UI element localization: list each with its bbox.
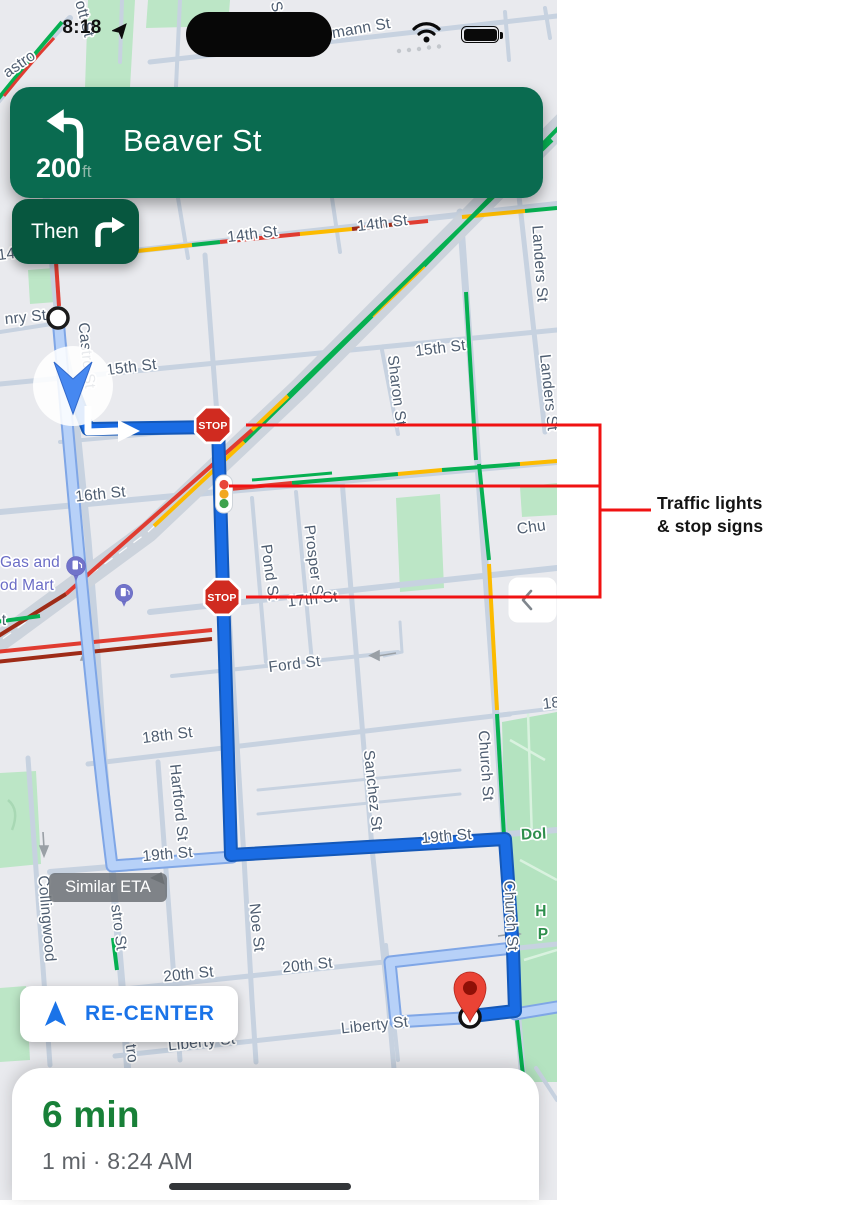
screen: mann St ott St astro S 14th St 14th St n… — [0, 0, 850, 1200]
maneuver-distance: 200ft — [36, 153, 92, 184]
then-maneuver-chip[interactable]: Then — [12, 199, 139, 264]
side-panel-handle[interactable] — [508, 577, 557, 623]
poi-label-gas: od Mart — [0, 577, 54, 594]
stop-sign-text: STOP — [198, 420, 227, 432]
trip-details: 1 mi · 8:24 AM — [42, 1148, 539, 1175]
route-start-point — [48, 308, 68, 328]
recenter-label: RE-CENTER — [85, 1002, 215, 1026]
home-indicator[interactable] — [169, 1183, 351, 1190]
status-time: 8:18 — [54, 17, 110, 39]
street-label: t — [2, 612, 7, 629]
poi-label-park: P — [538, 926, 549, 943]
dynamic-island — [186, 12, 332, 57]
navigation-arrow-icon — [43, 1001, 68, 1028]
recenter-button[interactable]: RE-CENTER — [20, 986, 238, 1042]
annotation-text: Traffic lights & stop signs — [657, 492, 763, 538]
maneuver-street: Beaver St — [123, 123, 262, 159]
annotation-line-1: Traffic lights — [657, 492, 763, 515]
stop-sign-icon: STOP — [204, 579, 240, 615]
street-label: tro — [122, 1043, 141, 1064]
navigation-banner[interactable]: 200ft Beaver St — [10, 87, 543, 198]
traffic-light-icon — [216, 475, 233, 513]
location-services-icon — [112, 21, 130, 44]
battery-icon — [461, 26, 499, 43]
then-label: Then — [31, 220, 79, 244]
similar-eta-badge[interactable]: Similar ETA — [49, 873, 167, 902]
annotation-line-2: & stop signs — [657, 515, 763, 538]
trip-eta: 6 min — [42, 1094, 539, 1136]
poi-label-park: Dol — [521, 825, 547, 843]
trip-summary-card[interactable]: 6 min 1 mi · 8:24 AM — [12, 1068, 539, 1200]
stop-sign-text: STOP — [207, 592, 236, 604]
street-label: 18 — [542, 694, 562, 713]
turn-right-icon — [91, 217, 127, 247]
location-puck — [33, 346, 113, 426]
wifi-icon — [411, 21, 442, 48]
poi-label-gas: Gas and — [0, 554, 60, 571]
stop-sign-icon: STOP — [195, 407, 231, 443]
similar-eta-label: Similar ETA — [65, 878, 151, 897]
distance-unit: ft — [82, 162, 91, 181]
poi-label-park: H — [535, 903, 546, 920]
